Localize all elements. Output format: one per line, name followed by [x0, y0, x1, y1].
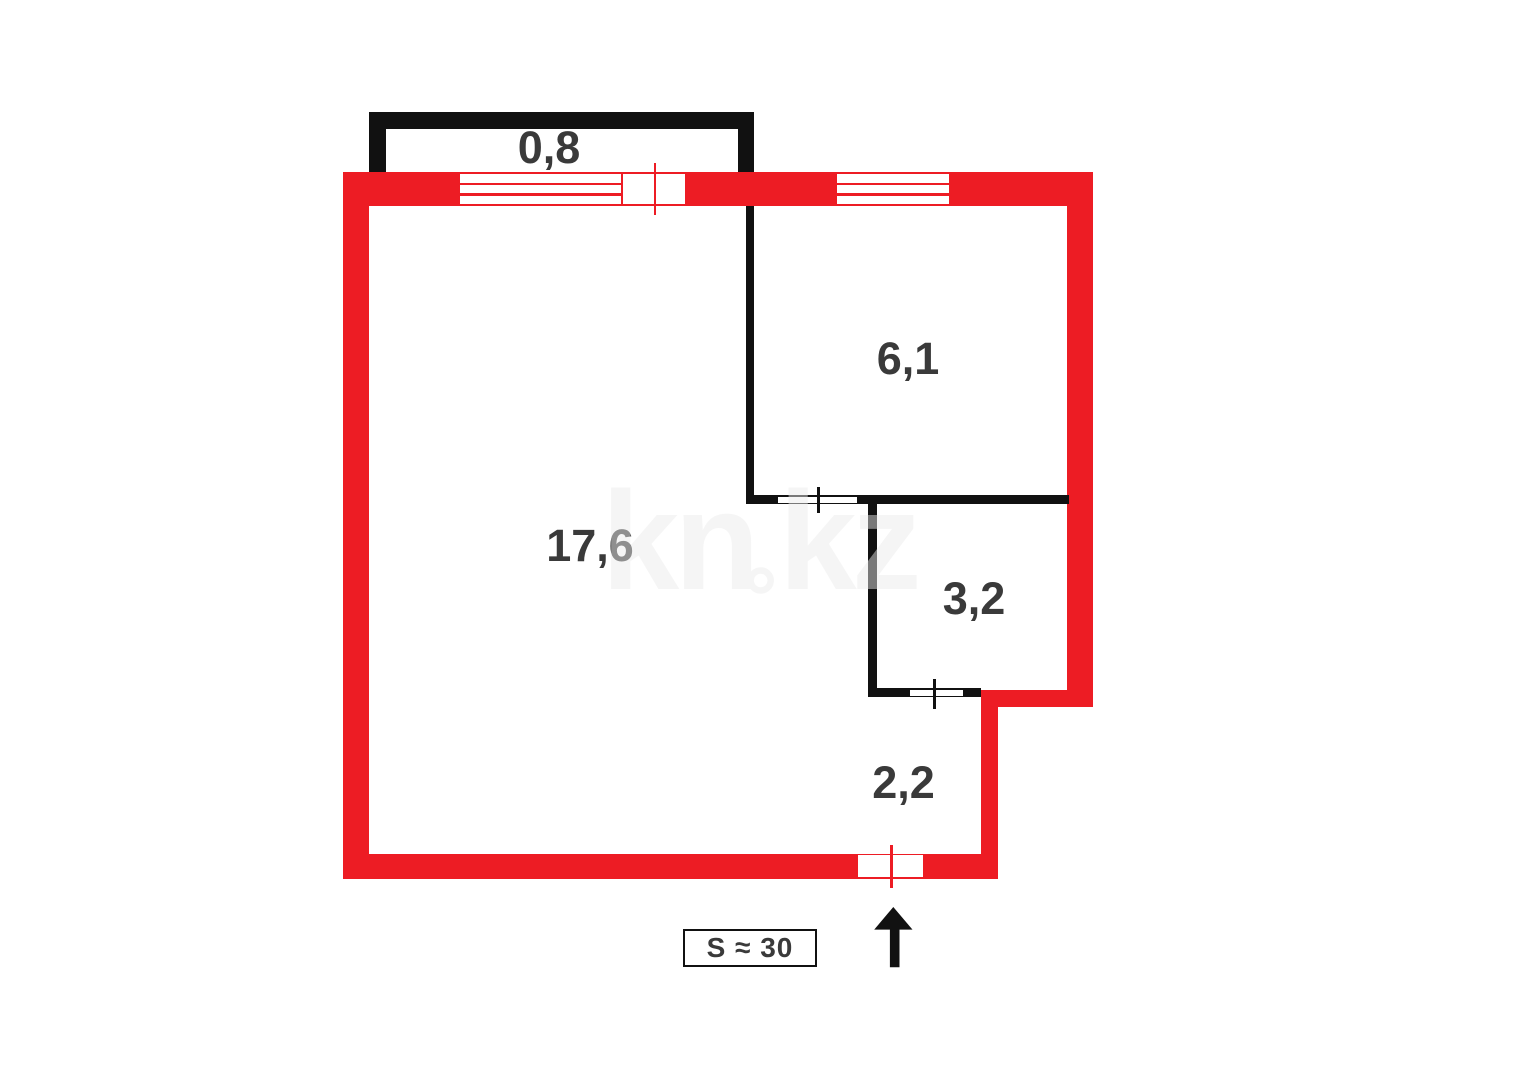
svg-text:kn: kn: [601, 462, 754, 619]
svg-text:kz: kz: [779, 462, 917, 619]
